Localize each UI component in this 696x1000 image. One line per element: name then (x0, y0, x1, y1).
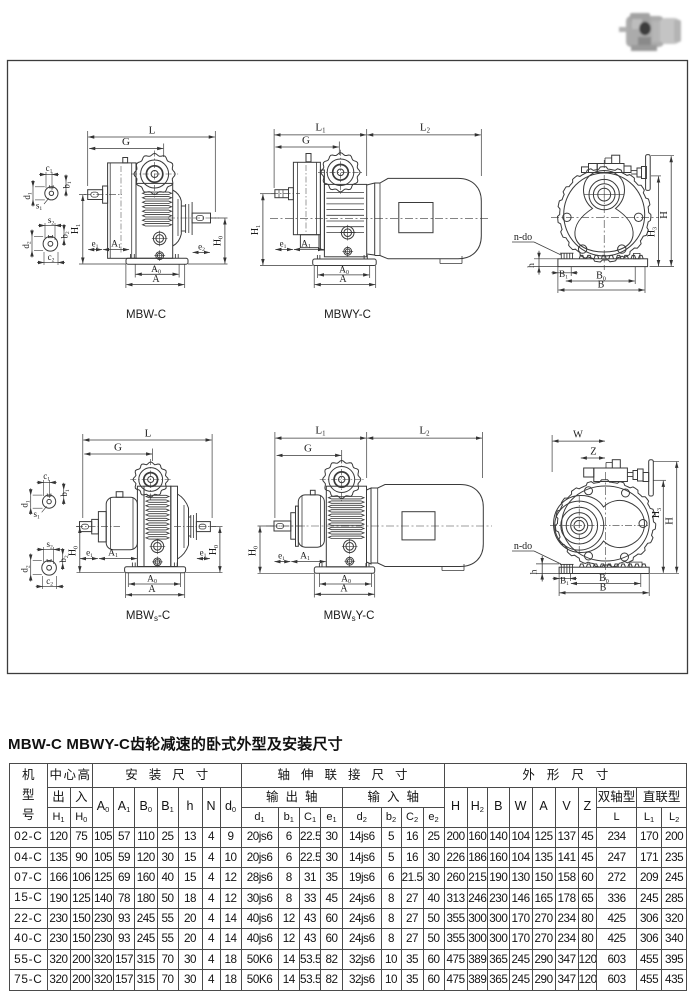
svg-text:Z: Z (590, 447, 596, 458)
svg-text:s1: s1 (36, 201, 43, 213)
svg-text:L: L (145, 428, 152, 440)
svg-text:L2: L2 (420, 122, 431, 135)
svg-text:G: G (114, 442, 122, 454)
svg-text:c1: c1 (43, 471, 50, 483)
svg-text:H3: H3 (647, 227, 659, 237)
svg-text:W: W (573, 430, 583, 441)
svg-text:s2: s2 (47, 539, 54, 551)
svg-text:b1: b1 (62, 181, 74, 189)
svg-text:h: h (530, 569, 540, 574)
svg-text:B1: B1 (560, 576, 569, 588)
svg-text:c2: c2 (46, 576, 53, 588)
svg-text:h: h (527, 263, 537, 268)
svg-text:MBWs-C: MBWs-C (126, 610, 170, 623)
svg-text:H0: H0 (68, 546, 80, 556)
svg-text:A: A (152, 274, 160, 285)
svg-text:H1: H1 (250, 225, 262, 235)
svg-text:d1: d1 (22, 192, 34, 200)
svg-text:L1: L1 (315, 425, 325, 438)
svg-text:n-do: n-do (514, 232, 532, 243)
svg-text:H0: H0 (208, 545, 220, 555)
svg-text:d2: d2 (20, 565, 32, 573)
svg-text:B: B (600, 582, 607, 593)
svg-text:b2: b2 (60, 231, 72, 239)
svg-text:A1: A1 (111, 240, 121, 251)
svg-text:e2: e2 (198, 242, 205, 254)
svg-text:A1: A1 (301, 240, 311, 251)
svg-text:d2: d2 (21, 241, 33, 249)
svg-text:b1: b1 (59, 489, 71, 497)
svg-text:H: H (665, 517, 676, 525)
svg-text:A: A (340, 584, 348, 595)
svg-text:A1: A1 (300, 552, 310, 563)
svg-text:e1: e1 (280, 239, 287, 251)
svg-text:H1: H1 (70, 224, 82, 234)
svg-text:e1: e1 (92, 239, 99, 251)
svg-text:L: L (149, 125, 156, 137)
svg-text:e1: e1 (200, 548, 207, 560)
svg-text:A: A (339, 274, 347, 285)
svg-text:s2: s2 (48, 215, 55, 227)
svg-text:H0: H0 (213, 236, 225, 246)
svg-text:e1: e1 (278, 551, 285, 563)
svg-text:G: G (304, 443, 312, 455)
svg-text:H0: H0 (248, 546, 260, 556)
svg-text:G: G (122, 136, 130, 148)
svg-text:e1: e1 (86, 548, 93, 560)
svg-text:d1: d1 (20, 500, 32, 508)
svg-text:L1: L1 (315, 122, 325, 135)
svg-text:n-do: n-do (514, 541, 532, 552)
svg-text:H: H (659, 211, 670, 219)
svg-text:c2: c2 (48, 252, 55, 264)
svg-text:MBW-C: MBW-C (126, 309, 166, 321)
svg-text:B: B (598, 280, 605, 291)
svg-text:B1: B1 (559, 269, 568, 281)
svg-text:s1: s1 (34, 509, 41, 521)
svg-text:A: A (148, 584, 156, 595)
svg-text:c1: c1 (46, 163, 53, 175)
svg-text:L2: L2 (419, 425, 430, 438)
svg-text:MBWY-C: MBWY-C (324, 309, 371, 321)
svg-text:b2: b2 (58, 555, 70, 563)
svg-text:MBWsY-C: MBWsY-C (324, 610, 375, 623)
svg-text:G: G (302, 135, 310, 147)
